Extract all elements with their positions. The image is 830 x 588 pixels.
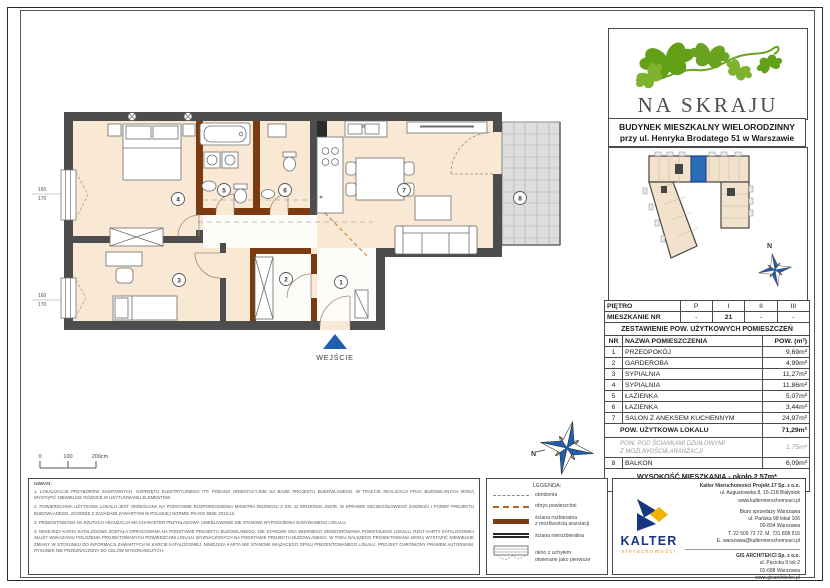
room-marker-7: 7	[398, 184, 411, 197]
kalter-logo: KALTER nieruchomości	[613, 479, 685, 574]
building-address-box: BUDYNEK MIESZKALNY WIELORODZINNY przy ul…	[608, 118, 806, 147]
floor-row-label: PIĘTRO	[605, 301, 680, 311]
sales-office-block: Biuro sprzedaży Warszawa ul. Pańska 98 l…	[685, 509, 800, 545]
chair	[116, 268, 133, 283]
partition-value: 1,75m²	[762, 438, 809, 457]
scale-bar: 0 100 200cm	[38, 454, 108, 468]
legend-item-window: okno z uchyłem otwierane jako pierwsze	[493, 544, 601, 564]
entrance-arrow-icon	[323, 334, 347, 349]
key-plan-compass-icon: N	[756, 243, 795, 289]
cabinet	[355, 290, 368, 318]
svg-text:5: 5	[222, 188, 226, 195]
note-item: 3. PRZEDSTAWIONA NA RZUTACH ARANŻACJA MA…	[34, 520, 474, 526]
key-plan-box: N	[608, 147, 808, 302]
window1-height: 170	[38, 196, 47, 202]
area-table-header: NR NAZWA POMIESZCZENIA POW. (m²)	[604, 336, 810, 347]
unit-area-table: PIĘTRO P I II III MIESZKANIE NR - 21 - -…	[604, 300, 810, 492]
col-area: POW. (m²)	[762, 336, 809, 346]
room-marker-5: 5	[218, 184, 231, 197]
balcony-row: 8 BALKON 6,09m²	[604, 458, 810, 469]
unit-col-1: 21	[712, 312, 744, 322]
unit-number-row: MIESZKANIE NR - 21 - -	[604, 312, 810, 323]
col-nr: NR	[605, 336, 622, 346]
company-website: www.kalternieruchomosci.pl	[685, 498, 800, 505]
room-marker-4: 4	[172, 193, 185, 206]
kalter-logo-sub: nieruchomości	[622, 549, 677, 555]
highlighted-unit	[691, 156, 706, 182]
room-marker-3: 3	[173, 274, 186, 287]
removable-wall-symbol	[493, 519, 529, 524]
balcony	[502, 122, 560, 245]
sink	[262, 190, 275, 199]
floor-col-3: III	[777, 301, 809, 311]
unit-col-2: -	[744, 312, 776, 322]
single-bed	[113, 296, 177, 320]
total-area-row: POW. UŻYTKOWA LOKALU 71,29m²	[604, 424, 810, 438]
svg-text:8: 8	[518, 196, 522, 203]
floor-plan-drawing: 160 170 160 170	[28, 100, 608, 480]
compass-rose-icon: N	[531, 416, 599, 480]
col-name: NAZWA POMIESZCZENIA	[622, 336, 762, 346]
company-block: Kalter Nieruchomości Projekt 17 Sp. z o.…	[685, 483, 800, 505]
table-row: 5ŁAZIENKA5,07m²	[604, 391, 810, 402]
kalter-logo-icon	[629, 498, 669, 532]
svg-text:2: 2	[284, 277, 288, 284]
unit-row-label: MIESZKANIE NR	[605, 312, 680, 322]
window2-width: 160	[38, 293, 47, 299]
notes-title: UWAGI:	[34, 482, 474, 487]
north-label: N	[767, 243, 772, 250]
room-marker-1: 1	[335, 276, 348, 289]
fixed-wall-symbol	[493, 533, 529, 538]
notes-box: UWAGI: 1. LOKALIZACJE PRZYBORÓW SANITARN…	[28, 478, 480, 575]
note-item: 4. NINIEJSZA KARTA KATALOGOWA ZOSTAŁA OP…	[34, 529, 474, 554]
entrance-label: WEJŚCIE	[316, 353, 354, 362]
tv-cabinet	[407, 122, 487, 133]
developer-contact-box: KALTER nieruchomości Kalter Nieruchomośc…	[612, 478, 806, 575]
sink	[202, 181, 216, 191]
washing-machine	[204, 152, 220, 168]
bathtub	[200, 123, 250, 145]
floor-col-1: I	[712, 301, 744, 311]
desk	[106, 252, 142, 266]
svg-text:4: 4	[176, 197, 180, 204]
project-name: NA SKRAJU	[609, 93, 807, 118]
catalog-card-sheet: 160 170 160 170	[0, 0, 830, 588]
north-label: N	[531, 451, 536, 458]
table-row: 7SALON Z ANEKSEM KUCHENNYM24,97m²	[604, 413, 810, 424]
note-item: 1. LOKALIZACJE PRZYBORÓW SANITARNYCH, OS…	[34, 489, 474, 501]
legend-item-lowering: obniżenia	[493, 492, 601, 499]
architect-block: GIS ARCHITEKCI Sp. z o.o. ul. Pęcicka 9 …	[685, 549, 800, 582]
room-marker-8: 8	[514, 192, 527, 205]
table-row: 4SYPIALNIA11,86m²	[604, 380, 810, 391]
table-row: 6ŁAZIENKA3,44m²	[604, 402, 810, 413]
unit-col-p: -	[680, 312, 712, 322]
toilet	[234, 184, 247, 203]
outline-dashed-symbol	[493, 506, 529, 508]
legend-item-removable-wall: ściana rozbieralna z możliwością aranżac…	[493, 515, 601, 529]
svg-text:7: 7	[402, 188, 406, 195]
wardrobe	[255, 257, 273, 319]
partition-area-row: POW. POD ŚCIANKAMI DZIAŁOWYMI Z MOŻLIWOŚ…	[604, 438, 810, 458]
contact-info: Kalter Nieruchomości Projekt 17 Sp. z o.…	[685, 479, 805, 574]
scale-100: 100	[63, 454, 72, 460]
scale-0: 0	[38, 454, 41, 460]
floor-col-2: II	[744, 301, 776, 311]
kalter-logo-text: KALTER	[621, 534, 678, 548]
toilet	[283, 152, 296, 171]
wardrobe	[110, 228, 163, 246]
table-row: 2GARDEROBA4,99m²	[604, 358, 810, 369]
building-address: przy ul. Henryka Brodatego 51 w Warszawi…	[609, 133, 805, 143]
lowering-line-symbol	[493, 495, 529, 496]
building-type: BUDYNEK MIESZKALNY WIELORODZINNY	[609, 122, 805, 132]
window-dimension-label: 160 170 160 170	[32, 187, 61, 308]
entrance-marker: WEJŚCIE	[316, 334, 354, 362]
svg-text:1: 1	[339, 280, 343, 287]
sofa	[395, 226, 477, 254]
key-plan-drawing: N	[609, 148, 805, 299]
office-email: E. warszawa@kalternieruchomosci.pl	[685, 538, 800, 545]
partition-label-2: Z MOŻLIWOŚCIĄ ARANŻACJI	[620, 448, 760, 456]
table-row: 3SYPIALNIA11,27m²	[604, 369, 810, 380]
room-marker-6: 6	[279, 184, 292, 197]
legend-title: LEGENDA:	[533, 483, 601, 489]
project-logo-box: NA SKRAJU	[608, 28, 808, 120]
total-label: POW. UŻYTKOWA LOKALU	[605, 424, 762, 437]
unit-col-3: -	[777, 312, 809, 322]
coffee-table	[415, 196, 451, 220]
legend-box: LEGENDA: obniżenia obrys powierzchni ści…	[486, 478, 608, 575]
legend-item-fixed-wall: ściana nierozbieralna	[493, 533, 601, 540]
dryer	[222, 152, 238, 168]
table-row: 1PRZEDPOKÓJ9,69m²	[604, 347, 810, 358]
room-marker-2: 2	[280, 273, 293, 286]
total-value: 71,29m²	[762, 424, 809, 437]
window1-width: 160	[38, 187, 47, 193]
window2-height: 170	[38, 302, 47, 308]
ivy-logo-icon	[628, 32, 788, 90]
window-symbol	[493, 544, 529, 562]
svg-text:3: 3	[177, 278, 181, 285]
svg-text:6: 6	[283, 188, 287, 195]
legend-item-outline: obrys powierzchni	[493, 503, 601, 510]
architect-website: www.gisarchitekci.pl	[685, 575, 800, 582]
note-item: 2. POWIERZCHNIA UŻYTKOWA LOKALU JEST OKR…	[34, 504, 474, 516]
partition-label-1: POW. POD ŚCIANKAMI DZIAŁOWYMI	[620, 440, 760, 448]
area-table-title: ZESTAWIENIE POW. UŻYTKOWYCH POMIESZCZEŃ	[604, 323, 810, 336]
floor-col-p: P	[680, 301, 712, 311]
scale-200: 200cm	[92, 454, 109, 460]
floor-row: PIĘTRO P I II III	[604, 300, 810, 312]
cabinet	[268, 124, 286, 137]
